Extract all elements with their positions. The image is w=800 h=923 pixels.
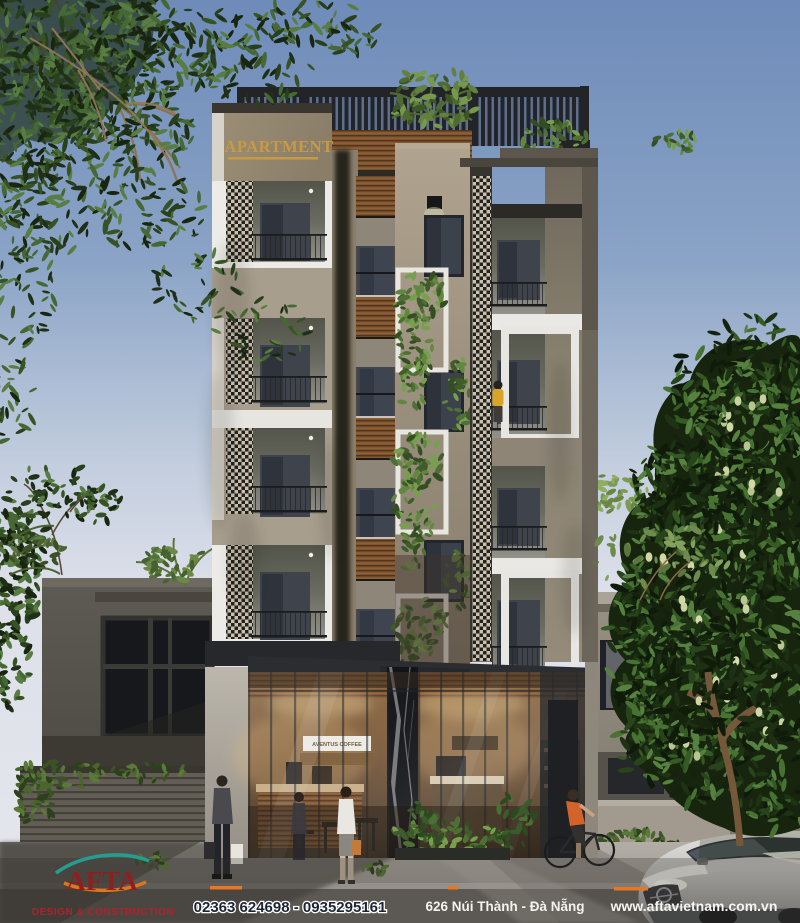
svg-text:AFTA: AFTA xyxy=(66,866,138,896)
svg-text:626 Núi Thành - Đà Nẵng: 626 Núi Thành - Đà Nẵng xyxy=(425,899,584,914)
svg-text:APARTMENT: APARTMENT xyxy=(224,137,333,156)
svg-text:www.aftavietnam.com.vn: www.aftavietnam.com.vn xyxy=(610,898,778,914)
svg-text:DESIGN & CONSTRUCTION: DESIGN & CONSTRUCTION xyxy=(32,907,174,918)
svg-text:02363 624698 - 0935295161: 02363 624698 - 0935295161 xyxy=(194,899,387,916)
